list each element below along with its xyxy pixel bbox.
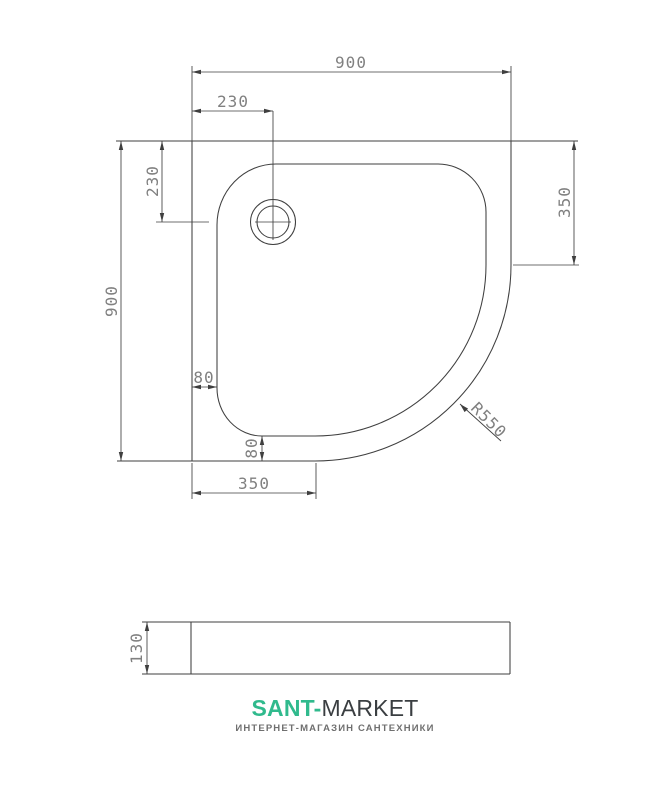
arrowhead-left	[192, 491, 201, 495]
drain	[251, 111, 296, 245]
dim-label-r550: R550	[467, 398, 511, 442]
arrowhead-top	[145, 622, 149, 631]
dim-label-230-left: 230	[143, 165, 162, 197]
arrowhead-left	[192, 109, 201, 113]
dimension-130-side: 130	[127, 622, 149, 674]
dimension-230-top: 230	[192, 92, 273, 113]
brand-tagline: ИНТЕРНЕТ-МАГАЗИН САНТЕХНИКИ	[0, 723, 670, 734]
arrowhead-left	[192, 70, 201, 74]
arrowhead-right	[502, 70, 511, 74]
dim-label-900-left: 900	[102, 285, 121, 317]
arrowhead-bottom	[119, 452, 123, 461]
dimension-r550: R550	[460, 398, 511, 442]
dimension-900-left: 900	[102, 141, 123, 461]
top-view-outer-outline	[116, 141, 578, 461]
arrowhead-right	[307, 491, 316, 495]
footer: SANT-MARKET ИНТЕРНЕТ-МАГАЗИН САНТЕХНИКИ	[0, 696, 670, 734]
dim-label-80-bottom: 80	[242, 437, 261, 458]
brand-logo: SANT-MARKET	[0, 696, 670, 721]
dimension-350-bottom: 350	[192, 463, 316, 499]
arrowhead-bottom	[145, 665, 149, 674]
arrowhead-top	[160, 141, 164, 150]
dim-label-80-left: 80	[193, 368, 214, 387]
brand-primary-text: SANT-	[251, 695, 321, 721]
outer-corner-arc-r550	[315, 265, 511, 461]
dim-label-350-bottom: 350	[238, 474, 270, 493]
dimension-80-bottom: 80	[242, 436, 264, 461]
arrowhead-bottom	[572, 256, 576, 265]
dimension-350-right: 350	[513, 141, 579, 265]
technical-drawing: 900 230 900 230	[0, 0, 670, 800]
arrowhead-right	[264, 109, 273, 113]
arrowhead-bottom	[160, 213, 164, 222]
inner-rim-outline	[217, 164, 486, 436]
side-view	[142, 622, 510, 674]
arrowhead-top	[119, 141, 123, 150]
page: 900 230 900 230	[0, 0, 670, 800]
dim-label-230-top: 230	[217, 92, 249, 111]
top-view-inner-outline	[217, 164, 486, 436]
dim-label-350-right: 350	[555, 186, 574, 218]
dim-label-900-top: 900	[335, 53, 367, 72]
dim-label-130-side: 130	[127, 632, 146, 664]
brand-secondary-text: MARKET	[321, 695, 418, 721]
arrowhead-top	[572, 141, 576, 150]
dimension-80-left: 80	[192, 368, 217, 389]
dimension-230-left: 230	[143, 141, 209, 222]
